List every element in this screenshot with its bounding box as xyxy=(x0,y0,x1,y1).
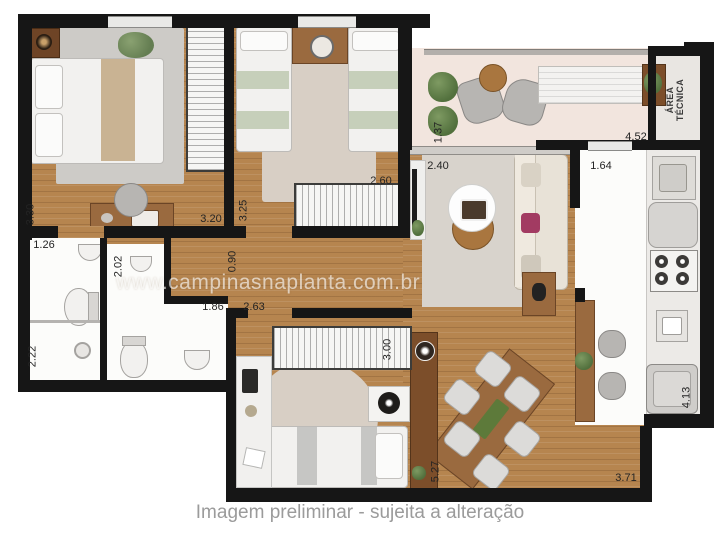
floor-plan: 3.30 3.20 3.25 2.60 1.37 4.52 2.40 1.64 … xyxy=(0,0,720,541)
bed-throw-blanket xyxy=(101,59,135,161)
bed-pillow xyxy=(352,31,400,51)
corner-shelf xyxy=(30,28,60,58)
kitchen-sink-top xyxy=(652,156,696,200)
fridge xyxy=(648,202,698,248)
single-bed-left xyxy=(236,26,292,152)
coffee-table-round xyxy=(448,184,496,232)
bedroom2-wardrobe xyxy=(294,183,402,229)
desk-item xyxy=(101,213,113,223)
wall xyxy=(644,414,704,428)
bar-stool xyxy=(598,372,626,400)
dim-kitchen-width: 1.64 xyxy=(584,160,618,173)
dim-living-width: 2.40 xyxy=(421,160,455,173)
bedroom1-chair xyxy=(114,183,148,217)
wall xyxy=(575,288,585,302)
tv-icon xyxy=(412,169,417,227)
bed-pillow xyxy=(35,65,63,109)
dim-bathroom1-height: 2.22 xyxy=(27,340,40,374)
door-opening xyxy=(246,226,292,238)
wall xyxy=(226,488,652,502)
burner-icon xyxy=(655,272,668,285)
wall xyxy=(18,380,236,392)
caption: Imagem preliminar - sujeita a alteração xyxy=(0,502,720,524)
wall xyxy=(648,46,656,144)
dim-bedroom3-width: 2.63 xyxy=(237,301,271,314)
dim-balcony-width: 4.52 xyxy=(619,131,653,144)
wall xyxy=(648,46,704,56)
wall xyxy=(226,308,236,500)
kitchen-sink xyxy=(656,310,688,342)
watermark: www.campinasnaplanta.com.br xyxy=(116,271,420,295)
wall xyxy=(398,14,412,150)
door-opening xyxy=(58,226,104,238)
wall xyxy=(100,238,107,382)
sofa-cushion xyxy=(521,163,541,187)
burner-icon xyxy=(676,272,689,285)
wall xyxy=(640,426,652,496)
sofa xyxy=(514,154,568,290)
living-side-table xyxy=(522,272,556,316)
technical-area-label: ÁREA TÉCNICA xyxy=(665,72,689,128)
living-plant xyxy=(412,220,424,236)
bed-pillow xyxy=(240,31,288,51)
dim-bedroom2-width: 2.60 xyxy=(364,175,398,188)
burner-icon xyxy=(676,255,689,268)
dim-bedroom2-height: 3.25 xyxy=(238,194,251,228)
balcony-round-table xyxy=(479,64,507,92)
toilet-tank xyxy=(88,292,99,322)
single-bed-bottom xyxy=(262,426,408,488)
balcony-bench xyxy=(538,66,644,104)
wall xyxy=(224,14,234,228)
toilet-tank xyxy=(122,336,146,346)
monitor-icon xyxy=(242,369,258,393)
accent-pillow xyxy=(521,213,540,233)
dim-bedroom1-width: 3.20 xyxy=(194,213,228,226)
nightstand xyxy=(292,26,348,64)
double-bed xyxy=(30,58,164,164)
shower-drain-icon xyxy=(74,342,91,359)
speaker-icon xyxy=(36,34,52,50)
desk-item xyxy=(245,405,257,417)
dim-kitchen-height: 4.13 xyxy=(681,381,694,415)
burner-icon xyxy=(655,255,668,268)
sink-basin xyxy=(662,317,682,335)
dim-bedroom3-height: 3.00 xyxy=(382,333,395,367)
record-icon xyxy=(378,392,400,414)
stove-cooktop xyxy=(650,250,698,292)
wall xyxy=(570,150,580,208)
table-lamp-icon xyxy=(310,35,334,59)
lamp-icon xyxy=(532,283,546,301)
paper-icon xyxy=(242,447,265,469)
sink-basin xyxy=(659,164,687,192)
shower-divider xyxy=(30,320,102,323)
bed-stripe xyxy=(349,111,401,129)
dim-bathroom2-width: 1.86 xyxy=(196,301,230,314)
balcony-plant xyxy=(428,72,458,102)
bed-stripe xyxy=(297,427,317,485)
dim-dining-height: 5.27 xyxy=(430,455,443,489)
dining-plant xyxy=(412,466,426,480)
bedroom1-plant xyxy=(118,32,154,58)
balcony-railing xyxy=(424,49,686,55)
dim-balcony-height: 1.37 xyxy=(433,116,446,150)
dim-bathroom1-width: 1.26 xyxy=(27,239,61,252)
wall xyxy=(700,42,714,428)
dim-bedroom1-height: 3.30 xyxy=(25,198,38,232)
bed-stripe xyxy=(349,71,401,89)
record-player-table xyxy=(368,386,410,422)
wall xyxy=(398,150,410,236)
single-bed-right xyxy=(348,26,404,152)
window xyxy=(108,16,172,28)
bed-pillow xyxy=(35,113,63,157)
bedroom3-desk xyxy=(236,356,272,488)
bar-stool xyxy=(598,330,626,358)
bed-stripe xyxy=(237,111,289,129)
counter-plant xyxy=(575,352,593,370)
window xyxy=(298,16,356,28)
bed-stripe xyxy=(237,71,289,89)
bed-pillow xyxy=(375,433,403,479)
tray-icon xyxy=(460,199,488,221)
round-decor-icon xyxy=(415,341,435,361)
dim-dining-width: 3.71 xyxy=(609,472,643,485)
